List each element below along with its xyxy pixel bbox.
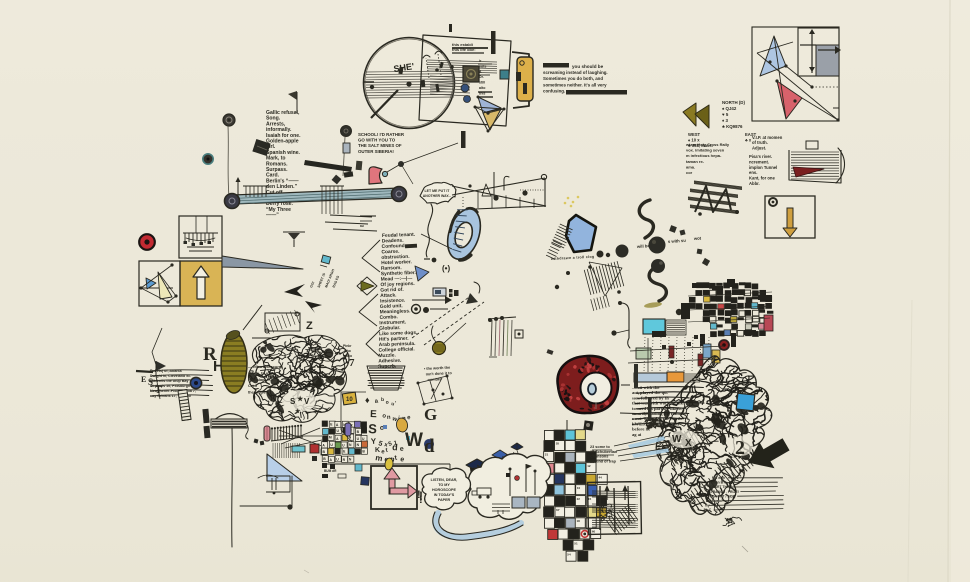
svg-text:mean BY: mean BY [711, 481, 726, 485]
svg-text:2: 2 [735, 437, 745, 459]
svg-text:Got rid of.: Got rid of. [380, 287, 404, 294]
svg-text:ANOTHER WAY...: ANOTHER WAY... [423, 194, 451, 198]
svg-text:PAPER: PAPER [438, 498, 451, 502]
svg-text:★: ★ [308, 370, 313, 376]
svg-text:single. tri a r.: single. tri a r. [248, 371, 271, 375]
svg-text:W: W [405, 430, 423, 451]
svg-text:22: 22 [577, 497, 581, 501]
svg-text:51: 51 [574, 541, 578, 545]
svg-text:ens.: ens. [749, 170, 757, 175]
svg-text:BUM dR: BUM dR [324, 469, 337, 473]
svg-text:LISTEN, DEAR,: LISTEN, DEAR, [431, 478, 458, 482]
svg-text:TO MY: TO MY [438, 483, 450, 487]
svg-text:who: who [343, 349, 351, 353]
svg-text:!: ! [419, 489, 423, 503]
svg-text:Harrislan ——: Harrislan —— [248, 378, 273, 382]
svg-text:67: 67 [556, 508, 560, 512]
svg-text:THE SALT MINES OF: THE SALT MINES OF [358, 143, 402, 148]
svg-text:Z: Z [306, 320, 313, 332]
svg-text:♦ 3: ♦ 3 [722, 118, 728, 123]
svg-text:the single: the single [248, 391, 266, 395]
svg-text:taman re-: taman re- [686, 159, 705, 164]
svg-text:Pinkr: Pinkr [343, 344, 352, 348]
svg-text:★: ★ [297, 395, 304, 403]
svg-text:12: 12 [587, 464, 591, 468]
svg-text:HOROSCOPE: HOROSCOPE [432, 488, 457, 492]
svg-text:n: n [387, 415, 391, 421]
svg-text:Pisa's river.: Pisa's river. [749, 154, 772, 159]
svg-text:d: d [424, 436, 435, 457]
svg-text:vox. imitating seven: vox. imitating seven [686, 148, 725, 153]
svg-text:W: W [672, 434, 682, 445]
svg-text:wot: wot [693, 235, 702, 241]
svg-text:Dr.: Dr. [479, 75, 484, 79]
svg-text:— rifles and scores: — rifles and scores [248, 365, 283, 369]
svg-text:T: T [155, 385, 162, 396]
svg-text:★: ★ [295, 408, 301, 415]
svg-text:ag ai: ag ai [632, 432, 642, 437]
svg-text:m infectious hepa-: m infectious hepa- [686, 153, 722, 158]
svg-text:Superb.: Superb. [378, 363, 397, 370]
svg-text:d: d [392, 442, 398, 452]
svg-text:S: S [290, 397, 296, 406]
svg-text:♠ QJ42: ♠ QJ42 [722, 106, 737, 111]
svg-text:PL C: PL C [704, 508, 712, 512]
svg-text:X: X [685, 438, 692, 449]
svg-text:S: S [148, 377, 153, 387]
svg-text:E: E [370, 409, 377, 420]
svg-text:b: b [381, 397, 384, 403]
svg-text:Kant, for one: Kant, for one [749, 176, 775, 181]
svg-text:10: 10 [346, 397, 353, 403]
svg-text:you should be: you should be [572, 64, 604, 69]
svg-text:NORTH (D): NORTH (D) [722, 100, 745, 105]
svg-text:Instrument.: Instrument. [379, 319, 406, 326]
svg-text:♣ x: ♣ x [745, 137, 752, 142]
svg-text:G: G [424, 405, 437, 424]
svg-text:♣ KQ9876: ♣ KQ9876 [722, 124, 743, 129]
svg-text:au: au [360, 224, 364, 228]
svg-text:♥ 5: ♥ 5 [722, 112, 729, 117]
svg-text:cor: cor [686, 170, 693, 175]
svg-text:still: still [479, 81, 485, 85]
svg-text:V: V [304, 397, 310, 406]
svg-text:CHART THRU: CHART THRU [710, 485, 733, 489]
svg-text:★: ★ [284, 387, 289, 393]
svg-text:rails: rails [479, 64, 486, 68]
svg-text:55: 55 [556, 442, 560, 446]
svg-text:sometimes neither. It's all ve: sometimes neither. It's all very [543, 82, 607, 87]
svg-text:ncrement.: ncrement. [749, 159, 769, 164]
svg-text:M: M [329, 436, 332, 440]
svg-text:wtam Holy Cross Rally: wtam Holy Cross Rally [685, 142, 730, 147]
svg-text:7: 7 [349, 357, 355, 369]
svg-text:GO WITH YOU TO: GO WITH YOU TO [358, 138, 396, 143]
svg-text:(•): (•) [442, 264, 450, 273]
svg-text:SCHOOL! I'D RATHER: SCHOOL! I'D RATHER [358, 132, 405, 137]
svg-text:Cecil: Cecil [248, 384, 257, 388]
svg-text:implon Tunnel: implon Tunnel [749, 165, 777, 170]
svg-text:will be: will be [636, 243, 651, 249]
svg-text:——”: ——” [266, 213, 279, 219]
svg-text:A: A [479, 70, 482, 74]
svg-text:backward: backward [706, 499, 722, 503]
svg-text:Abbr.: Abbr. [749, 181, 760, 186]
svg-text:Confound.: Confound. [382, 243, 407, 250]
svg-text:OUTER SIBERIA!: OUTER SIBERIA! [358, 149, 394, 154]
svg-text:10: 10 [577, 486, 581, 490]
svg-text:E: E [141, 375, 146, 384]
svg-text:Sometimes you do both, and: Sometimes you do both, and [543, 76, 603, 81]
svg-text:Adjust.: Adjust. [752, 145, 766, 150]
svg-text:IN TODAY'S: IN TODAY'S [434, 493, 455, 497]
svg-text:ama.: ama. [686, 164, 695, 169]
svg-text:WEST: WEST [688, 132, 701, 137]
svg-text:MC with: MC with [712, 476, 725, 480]
svg-text:e: e [400, 446, 405, 453]
svg-text:the move: the move [310, 365, 327, 369]
svg-text:18: 18 [576, 519, 580, 523]
svg-text:alto: alto [479, 86, 486, 90]
svg-text:54: 54 [567, 552, 571, 556]
svg-text:21: 21 [545, 453, 549, 457]
svg-text:confusing.: confusing. [543, 89, 565, 94]
svg-text:44: 44 [598, 476, 602, 480]
svg-text:35 Schubertian: 35 Schubertian [590, 450, 618, 454]
svg-text:STRAIGHT / SIDE: STRAIGHT / SIDE [707, 494, 736, 498]
svg-text:♦: ♦ [365, 395, 370, 405]
svg-text:LET ME PUT IT: LET ME PUT IT [425, 189, 451, 193]
svg-text:Adhesive.: Adhesive. [378, 358, 402, 365]
svg-text:STRANGE , PRIZE!: STRANGE , PRIZE! [708, 490, 739, 494]
svg-text:screaming instead of laughing.: screaming instead of laughing. [543, 70, 608, 75]
svg-text:23 some to: 23 some to [590, 445, 611, 449]
svg-text:60: 60 [592, 530, 596, 534]
svg-text:S: S [368, 421, 378, 436]
